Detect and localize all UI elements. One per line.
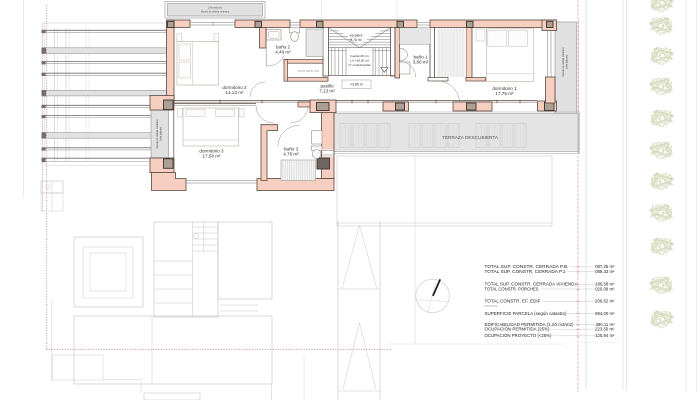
svg-text:089,33 m²: 089,33 m² <box>595 269 615 274</box>
svg-text:TOTAL CONSTR. PORCHES: TOTAL CONSTR. PORCHES <box>485 286 540 292</box>
svg-text:huella=28 cm: huella=28 cm <box>350 54 369 58</box>
svg-text:Murete de celosia ceramica: Murete de celosia ceramica <box>201 11 230 14</box>
svg-text:4,49 m²: 4,49 m² <box>275 50 291 55</box>
svg-text:17,58 m²: 17,58 m² <box>202 154 221 159</box>
svg-text:escalera: escalera <box>350 34 363 38</box>
svg-text:OCUPACIÓN PERMITIDA (25%): OCUPACIÓN PERMITIDA (25%) <box>485 326 550 333</box>
svg-text:4,76 m²: 4,76 m² <box>283 152 299 157</box>
svg-text:Juliet balcony: Juliet balcony <box>208 7 223 10</box>
svg-text:020,08 m²: 020,08 m² <box>595 286 615 291</box>
svg-text:OCUPACIÓN PROYECTO (<25%): OCUPACIÓN PROYECTO (<25%) <box>485 332 552 339</box>
svg-text:Juliet balcony: Juliet balcony <box>160 126 163 141</box>
svg-text:TERRAZA DESCUBIERTA: TERRAZA DESCUBIERTA <box>442 135 498 140</box>
svg-text:3,66 m²: 3,66 m² <box>413 60 429 65</box>
svg-text:c.h.=18,50 cm: c.h.=18,50 cm <box>350 59 370 63</box>
svg-text:armario ropa de cama: armario ropa de cama <box>298 70 320 73</box>
svg-text:+3,85 m: +3,85 m <box>350 82 363 86</box>
svg-text:6,76 m²: 6,76 m² <box>350 38 362 42</box>
svg-text:Juliet balcony: Juliet balcony <box>566 54 569 69</box>
svg-text:TOTAL SUP. CONSTR. CERRADA P.1: TOTAL SUP. CONSTR. CERRADA P.1 <box>485 269 566 275</box>
svg-text:(sin porches): (sin porches) <box>485 305 498 308</box>
svg-text:206,62 m²: 206,62 m² <box>595 299 615 304</box>
svg-text:894,00 m²: 894,00 m² <box>595 311 615 316</box>
svg-text:14,13 m²: 14,13 m² <box>225 90 244 95</box>
svg-text:223,50 m²: 223,50 m² <box>595 327 615 332</box>
svg-text:17 contrahuellas: 17 contrahuellas <box>348 63 371 67</box>
svg-text:17,75 m²: 17,75 m² <box>495 91 514 96</box>
svg-text:SUPERFICIE PARCELA (según cata: SUPERFICIE PARCELA (según catastro) <box>485 311 567 317</box>
svg-text:7,13 m²: 7,13 m² <box>319 89 335 94</box>
svg-text:TOTAL CONSTR. EF. EDIF: TOTAL CONSTR. EF. EDIF <box>485 299 541 305</box>
svg-text:125,94 m²: 125,94 m² <box>595 333 615 338</box>
